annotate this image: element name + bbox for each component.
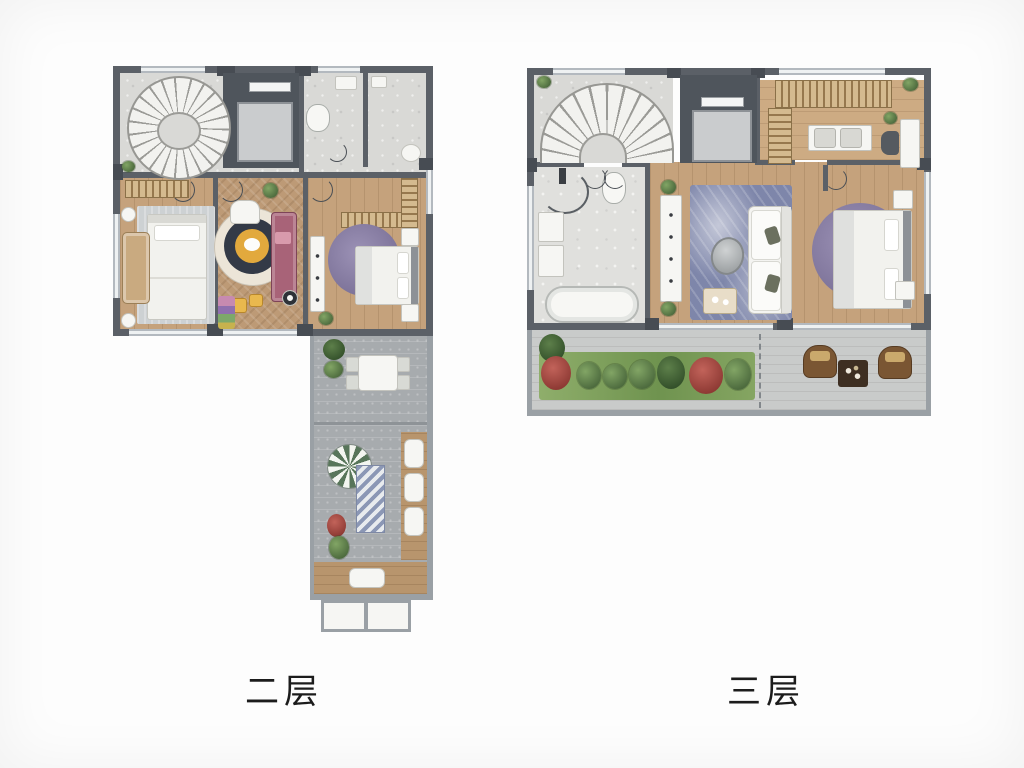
planter-box [321,600,367,632]
nightstand [401,228,419,246]
sofa [748,206,792,314]
window [779,68,885,75]
pillow [397,252,409,274]
desk-chair [881,131,899,155]
dining-table [358,355,398,391]
nightstand [895,281,915,300]
bench-cushion [814,128,836,148]
shrub [657,356,685,389]
cushion [275,232,291,244]
tv-console [660,195,682,302]
plan-third-floor [527,68,931,416]
blanket [356,247,372,304]
chair-cushion [885,352,905,362]
window [113,214,120,298]
lounge-rug [356,465,385,533]
shrub [577,362,601,389]
dining-chair [346,375,359,390]
interior-wall [303,178,308,329]
vanity-sink [538,245,564,277]
play-mat [218,296,235,329]
loveseat [122,232,150,304]
window [553,68,625,75]
door-swing [309,178,333,202]
potted-plant [122,161,135,172]
tv-console [310,236,325,312]
headboard [148,215,206,223]
shrub [603,364,627,389]
door-swing [604,167,626,189]
door-swing [171,178,195,202]
pillow [154,225,200,241]
headboard [411,247,418,304]
potted-plant [661,302,676,316]
flower-shrub [689,357,723,394]
door-swing [584,167,606,189]
flower-shrub [541,356,571,390]
terrace-divider [759,334,761,408]
potted-plant [903,78,918,91]
shrub [324,361,343,378]
vanity-sink [335,76,357,90]
shrub [725,359,751,390]
spiral-staircase-core [157,112,201,150]
potted-plant [537,76,551,88]
window [785,323,911,330]
shrub [323,339,345,360]
wall-pier [667,68,681,78]
caption-third-floor: 三层 [727,664,805,713]
wall-pier [527,158,537,172]
pillow [397,277,409,299]
nightstand [401,304,419,322]
outdoor-armchair [878,346,912,379]
elevator-car [692,110,752,162]
wash-basin [401,144,421,162]
floor-plans-image: 二层 三层 [0,0,1024,768]
planter-box [365,600,411,632]
pillow [884,219,899,251]
vanity-sink [538,212,564,242]
bed [147,214,207,320]
caption-second-floor: 二层 [245,664,323,713]
shrub [629,360,655,389]
window [318,66,360,73]
blanket-fold [148,277,206,279]
elevator-door [701,97,744,107]
interior-wall [299,73,304,172]
blanket [834,211,854,308]
terrace-divider [314,422,427,425]
dining-chair [346,357,359,372]
shower-column [559,168,566,184]
bathroom-cabinet [371,76,387,88]
plan-second-floor [113,66,433,628]
outdoor-armchair [803,345,837,378]
wardrobe [768,108,792,164]
round-side-table [282,290,298,306]
window [527,186,534,290]
wardrobe [401,178,418,228]
dining-chair [397,357,410,372]
elevator-car [237,102,293,162]
interior-wall [645,167,650,323]
door-swing [825,168,847,190]
rug-cat-motif [244,238,260,251]
wall-pier [645,318,659,330]
toilet [306,104,330,132]
terrace-wall [926,330,931,416]
bench-cushion [840,128,862,148]
window [221,329,297,336]
sofa-back [781,207,791,313]
potted-plant [661,180,676,194]
outdoor-coffee-table [838,360,868,387]
chair-cushion [810,351,830,361]
dining-chair [397,375,410,390]
terrace-wall [310,336,314,600]
flower-shrub [327,514,346,537]
tea-table [703,288,737,314]
potted-plant [884,112,897,124]
nightstand [893,190,913,209]
potted-plant [263,183,278,198]
side-table [121,207,136,222]
window [655,323,773,330]
wall-pier [419,158,433,170]
window [924,172,931,294]
toy [249,294,263,307]
sun-lounger [404,473,424,502]
window [426,170,433,214]
wall-pier [297,324,313,336]
door-swing [219,178,243,202]
potted-plant [319,312,333,325]
terrace-wall [427,336,433,600]
armchair [230,200,260,224]
window [141,66,205,73]
kids-sofa [271,212,297,302]
interior-wall [363,73,368,167]
terrace-wall [527,330,532,416]
window [129,329,211,336]
desk [900,119,920,168]
sun-lounger [349,568,385,588]
side-table [121,313,136,328]
sun-lounger [404,507,424,536]
bathtub [545,286,639,323]
shrub [329,536,349,559]
sun-lounger [404,439,424,468]
wardrobe [775,80,892,108]
elevator-door [249,82,291,92]
terrace-wall [527,410,931,416]
door-swing [327,142,347,162]
bed [355,246,419,305]
